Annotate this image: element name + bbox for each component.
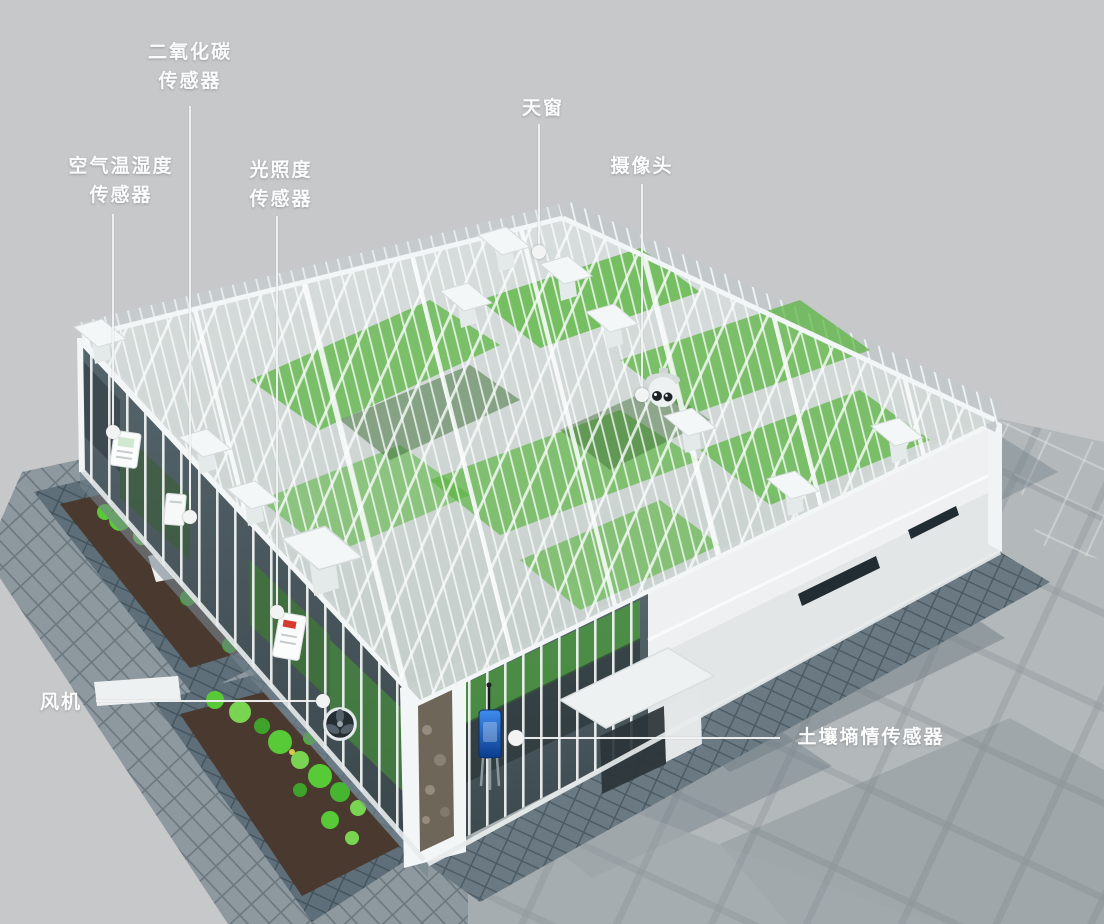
callout-co2-line2: 传感器 xyxy=(148,67,232,96)
leader-line-co2 xyxy=(189,106,191,510)
leader-line-fan xyxy=(96,700,318,702)
leader-line-skylight xyxy=(538,124,540,246)
callout-skylight: 天窗 xyxy=(522,94,564,123)
greenhouse-3d-scene xyxy=(0,0,1104,924)
callout-air-line2: 传感器 xyxy=(68,181,173,210)
leader-dot-light xyxy=(270,605,284,619)
leader-dot-air xyxy=(106,425,120,439)
callout-air-sensor: 空气温湿度 传感器 xyxy=(68,152,173,211)
leader-dot-co2 xyxy=(183,510,197,524)
callout-fan: 风机 xyxy=(40,688,82,717)
callout-camera-text: 摄像头 xyxy=(610,152,673,181)
callout-light-sensor: 光照度 传感器 xyxy=(249,156,312,215)
callout-light-line2: 传感器 xyxy=(249,185,312,214)
co2-sensor-device xyxy=(164,493,187,526)
callout-light-line1: 光照度 xyxy=(249,156,312,185)
callout-soil-sensor: 土壤墒情传感器 xyxy=(797,723,944,752)
leader-dot-soil xyxy=(508,730,524,746)
callout-co2-line1: 二氧化碳 xyxy=(148,38,232,67)
callout-camera: 摄像头 xyxy=(610,152,673,181)
leader-line-camera xyxy=(641,184,643,389)
callout-fan-text: 风机 xyxy=(40,688,82,717)
leader-dot-fan xyxy=(316,694,330,708)
fan-device xyxy=(323,707,357,741)
callout-co2-sensor: 二氧化碳 传感器 xyxy=(148,38,232,97)
callout-air-line1: 空气温湿度 xyxy=(68,152,173,181)
leader-line-light xyxy=(276,216,278,606)
callout-skylight-text: 天窗 xyxy=(522,94,564,123)
leader-dot-camera xyxy=(635,388,649,402)
leader-line-air xyxy=(112,214,114,426)
leader-dot-skylight xyxy=(532,245,546,259)
greenhouse-annotated-figure: 二氧化碳 传感器 空气温湿度 传感器 光照度 传感器 天窗 摄像头 风机 土壤墒… xyxy=(0,0,1104,924)
callout-soil-text: 土壤墒情传感器 xyxy=(797,723,944,752)
leader-line-soil xyxy=(522,737,780,739)
